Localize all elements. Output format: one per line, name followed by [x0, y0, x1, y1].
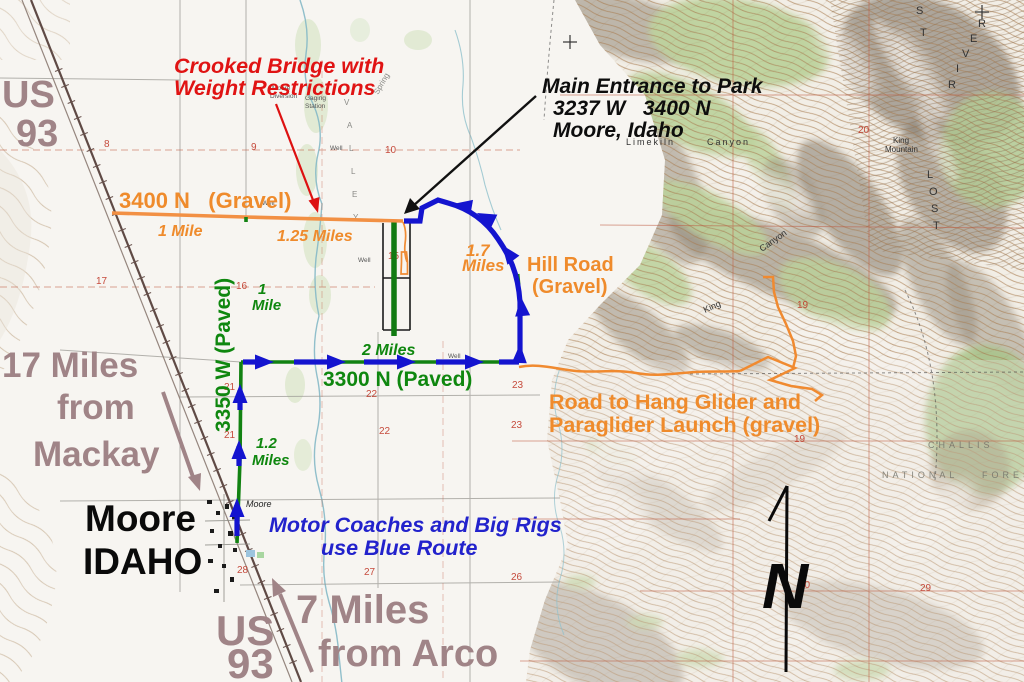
svg-text:E: E: [970, 33, 977, 45]
svg-text:O: O: [929, 186, 938, 198]
svg-text:Well: Well: [448, 353, 461, 360]
svg-text:3350 W (Paved): 3350 W (Paved): [212, 278, 235, 432]
svg-text:Moore, Idaho: Moore, Idaho: [553, 119, 684, 142]
svg-text:17: 17: [96, 276, 108, 287]
svg-text:23: 23: [511, 420, 523, 431]
svg-text:26: 26: [511, 572, 523, 583]
svg-text:Crooked Bridge with: Crooked Bridge with: [174, 54, 384, 78]
svg-text:US: US: [2, 74, 55, 116]
svg-text:93: 93: [227, 640, 274, 682]
svg-text:7 Miles: 7 Miles: [296, 588, 429, 632]
svg-text:Weight Restrictions: Weight Restrictions: [174, 76, 376, 100]
svg-text:Road to Hang Glider and: Road to Hang Glider and: [549, 390, 801, 414]
svg-text:Main Entrance to Park: Main Entrance to Park: [542, 75, 764, 98]
svg-text:Mountain: Mountain: [885, 145, 918, 154]
svg-text:L: L: [349, 144, 354, 153]
svg-text:S: S: [916, 5, 923, 17]
svg-text:23: 23: [512, 380, 524, 391]
svg-text:Well: Well: [358, 257, 371, 264]
svg-text:I: I: [956, 63, 959, 75]
svg-text:3300 N (Paved): 3300 N (Paved): [323, 368, 472, 391]
svg-text:19: 19: [797, 300, 809, 311]
svg-text:Canyon: Canyon: [707, 137, 750, 147]
svg-text:Mile: Mile: [252, 297, 281, 314]
svg-text:T: T: [920, 27, 927, 39]
svg-text:10: 10: [385, 145, 397, 156]
svg-text:IDAHO: IDAHO: [83, 541, 202, 582]
svg-text:1.25 Miles: 1.25 Miles: [277, 228, 353, 245]
svg-text:King: King: [893, 136, 909, 145]
svg-text:29: 29: [920, 583, 932, 594]
svg-text:use Blue Route: use Blue Route: [321, 536, 478, 560]
svg-text:93: 93: [16, 113, 58, 155]
svg-text:(Gravel): (Gravel): [532, 276, 608, 298]
svg-text:N: N: [762, 550, 810, 622]
svg-text:1 Mile: 1 Mile: [158, 223, 203, 240]
svg-text:17 Miles: 17 Miles: [2, 346, 138, 385]
svg-text:E: E: [352, 190, 357, 199]
svg-text:16: 16: [236, 281, 248, 292]
svg-text:V: V: [962, 48, 970, 60]
svg-text:27: 27: [364, 567, 376, 578]
svg-text:Moore: Moore: [246, 499, 272, 509]
svg-text:from Arco: from Arco: [318, 633, 498, 675]
svg-text:NATIONAL: NATIONAL: [882, 470, 958, 480]
svg-text:Miles: Miles: [252, 452, 290, 469]
svg-text:L: L: [927, 169, 933, 181]
svg-text:T: T: [933, 220, 940, 232]
svg-text:A: A: [347, 121, 353, 130]
svg-text:1: 1: [258, 281, 266, 298]
svg-text:Mackay: Mackay: [33, 435, 160, 474]
svg-text:8: 8: [104, 139, 110, 150]
svg-text:Motor Coaches and Big Rigs: Motor Coaches and Big Rigs: [269, 513, 562, 537]
svg-text:3237 W 3400 N: 3237 W 3400 N: [553, 97, 711, 120]
svg-text:Paraglider Launch (gravel): Paraglider Launch (gravel): [549, 413, 820, 437]
svg-text:R: R: [978, 18, 986, 30]
svg-text:20: 20: [858, 125, 870, 136]
svg-text:2 Miles: 2 Miles: [361, 342, 415, 359]
svg-text:Hill Road: Hill Road: [527, 254, 614, 276]
svg-text:22: 22: [379, 426, 391, 437]
svg-text:9: 9: [251, 142, 257, 153]
svg-text:R: R: [948, 79, 956, 91]
svg-text:L: L: [351, 167, 356, 176]
svg-text:CHALLIS: CHALLIS: [928, 440, 994, 450]
svg-text:from: from: [57, 388, 135, 427]
svg-text:28: 28: [237, 565, 249, 576]
svg-text:S: S: [931, 203, 938, 215]
svg-text:3400 N (Gravel): 3400 N (Gravel): [119, 188, 291, 213]
svg-text:Moore: Moore: [85, 498, 196, 539]
svg-text:Miles: Miles: [462, 256, 505, 275]
svg-text:FOREST: FOREST: [982, 470, 1024, 480]
svg-text:Well: Well: [330, 145, 343, 152]
svg-text:Station: Station: [305, 103, 326, 110]
svg-text:1.2: 1.2: [256, 435, 278, 452]
